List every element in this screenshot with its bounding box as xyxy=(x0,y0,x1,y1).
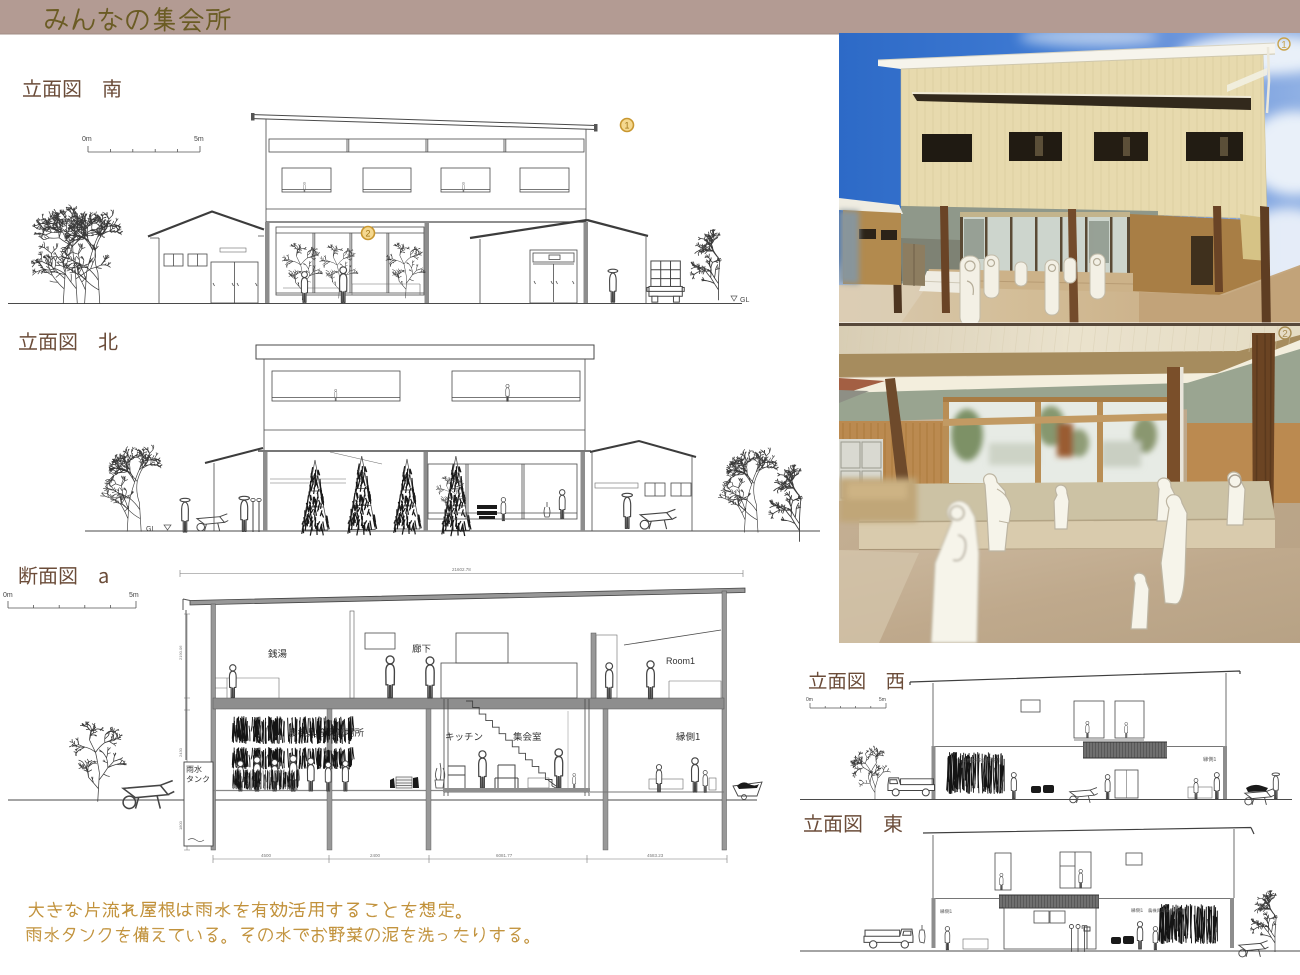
svg-text:1: 1 xyxy=(624,121,629,131)
svg-text:5m: 5m xyxy=(879,697,886,703)
svg-text:5m: 5m xyxy=(129,592,139,599)
svg-text:21602.78: 21602.78 xyxy=(452,567,471,572)
svg-text:Room1: Room1 xyxy=(666,656,695,666)
svg-text:0m: 0m xyxy=(3,592,13,599)
svg-text:1: 1 xyxy=(1281,40,1287,51)
svg-text:GL: GL xyxy=(146,526,155,533)
svg-text:2400: 2400 xyxy=(370,853,381,858)
svg-text:6081.77: 6081.77 xyxy=(496,853,513,858)
svg-text:2: 2 xyxy=(365,229,370,239)
svg-text:GL: GL xyxy=(740,297,749,304)
svg-text:4500: 4500 xyxy=(261,853,272,858)
svg-text:2: 2 xyxy=(1282,329,1288,340)
svg-text:0m: 0m xyxy=(82,136,92,143)
svg-text:1800: 1800 xyxy=(178,820,183,830)
svg-text:2430: 2430 xyxy=(178,747,183,757)
svg-text:2190.06: 2190.06 xyxy=(178,645,183,660)
svg-text:5m: 5m xyxy=(194,136,204,143)
svg-text:4583.23: 4583.23 xyxy=(647,853,664,858)
svg-text:0m: 0m xyxy=(806,697,813,703)
